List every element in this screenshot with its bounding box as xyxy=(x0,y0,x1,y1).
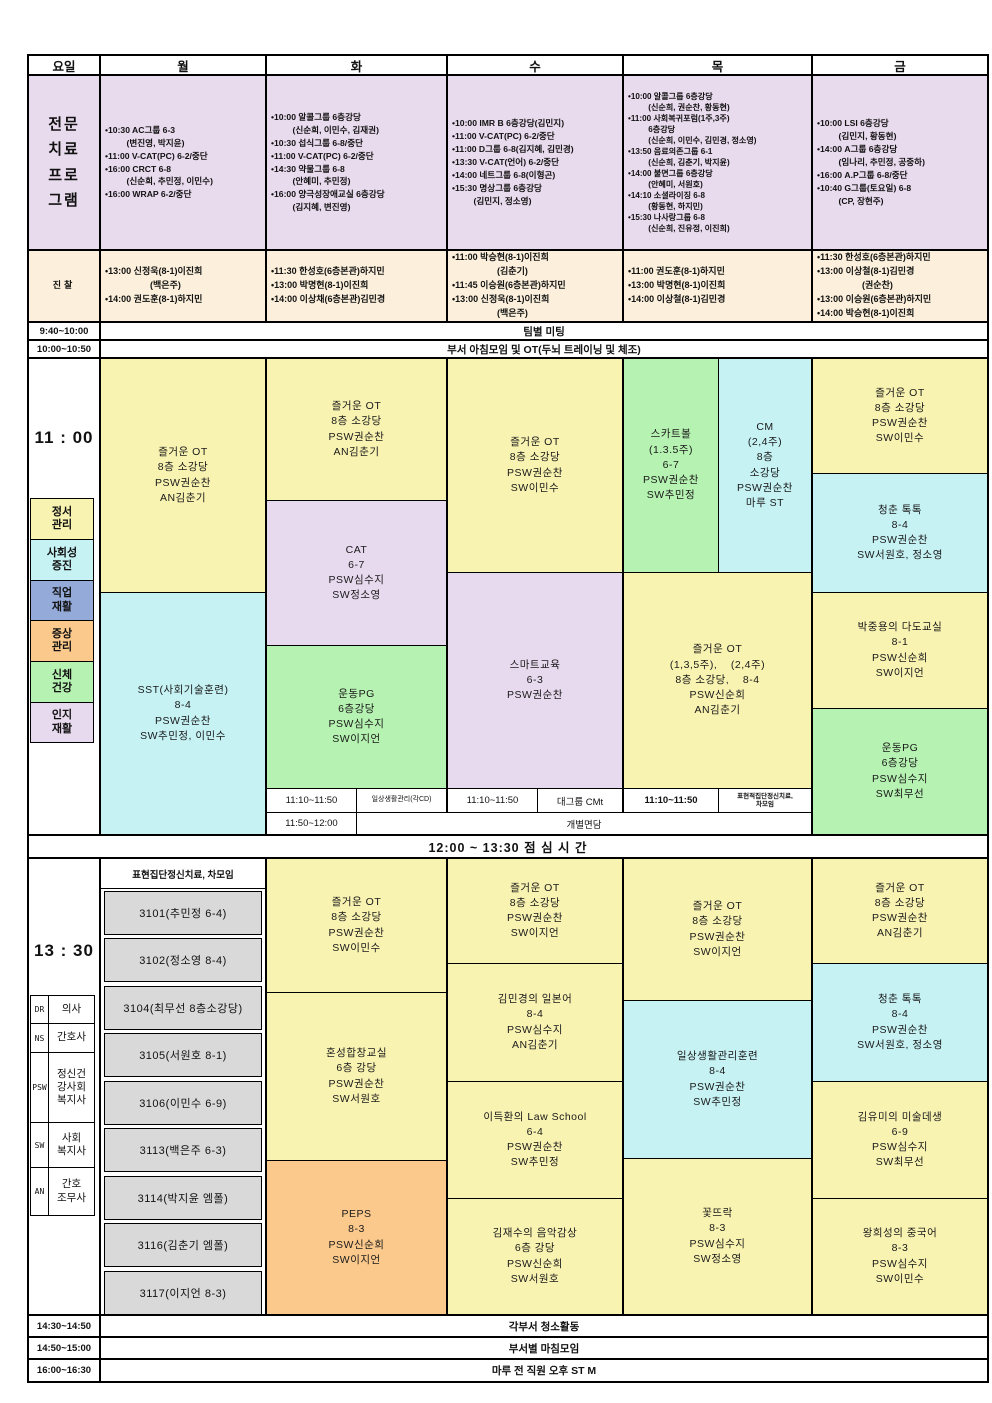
pm-room-3114: 3114(박지윤 엠폴) xyxy=(104,1176,262,1220)
team-meeting-text: 팀별 미팅 xyxy=(100,322,988,340)
pm-room-3101: 3101(추민정 6-4) xyxy=(104,891,262,935)
afternoon-st-time: 16:00~16:30 xyxy=(28,1359,100,1382)
am-fri-talktalk-block: 청춘 톡톡 8-4 PSW권순찬 SW서원호, 정소영 xyxy=(812,473,988,593)
legend-vocational-rehab: 직업 재활 xyxy=(30,580,94,621)
program-thu: •10:00 알콜그룹 6층강당 (신순희, 권순찬, 황동현) •11:00 … xyxy=(623,75,812,250)
pm-tue-peps-block: PEPS 8-3 PSW신순희 SW이지언 xyxy=(266,1160,447,1315)
am-sub1-wed-time: 11:10~11:50 xyxy=(447,788,538,813)
legend-an-abbr: AN xyxy=(30,1167,49,1216)
afternoon-st-text: 마루 전 직원 오후 ST M xyxy=(100,1359,988,1382)
lunch-row: 12:00 ~ 13:30 점 심 시 간 xyxy=(28,835,988,858)
pm-tue-choir-block: 혼성합창교실 6층 강당 PSW권순찬 SW서원호 xyxy=(266,992,447,1161)
legend-symptom-management: 증상 관리 xyxy=(30,620,94,662)
program-fri: •10:00 LSI 6층강당 (김민지, 황동현) •14:00 A그룹 6층… xyxy=(812,75,988,250)
pm-tue-ot-block: 즐거운 OT 8층 소강당 PSW권순찬 SW이민수 xyxy=(266,858,447,993)
pm-fri-talktalk-block: 청춘 톡톡 8-4 PSW권순찬 SW서원호, 정소영 xyxy=(812,963,988,1082)
closing-meeting-time: 14:50~15:00 xyxy=(28,1337,100,1359)
pm-fri-chinese-block: 왕희성의 중국어 8-3 PSW심수지 SW이민수 xyxy=(812,1198,988,1315)
pm-room-3104: 3104(최무선 8층소강당) xyxy=(104,986,262,1030)
exam-wed: •11:00 박승현(8-1)이진희 (김춘기) •11:45 이승원(6층본관… xyxy=(447,250,623,322)
pm-room-3116: 3116(김춘기 엠폴) xyxy=(104,1223,262,1267)
team-meeting-time: 9:40~10:00 xyxy=(28,322,100,340)
cleanup-time: 14:30~14:50 xyxy=(28,1315,100,1337)
pm-thu-daily-life-block: 일상생활관리훈련 8-4 PSW권순찬 SW추민정 xyxy=(623,1000,812,1159)
am-sub1-tue-label: 일상생활관리(각CD) xyxy=(356,788,447,813)
am-sub2-label: 개별면담 xyxy=(356,812,812,835)
am-time-label: 11 : 00 xyxy=(28,425,100,451)
exam-thu: •11:00 권도훈(8-1)하지민 •13:00 박명현(8-1)이진희 •1… xyxy=(623,250,812,322)
col-header-fri: 금 xyxy=(812,55,988,75)
col-header-mon: 월 xyxy=(100,55,266,75)
morning-meeting-time: 10:00~10:50 xyxy=(28,340,100,358)
exam-fri: •11:30 한성호(6층본관)하지민 •13:00 이상철(8-1)김민경 (… xyxy=(812,250,988,322)
pm-mon-header-cell: 표현집단정신치료, 차모임 xyxy=(100,858,266,889)
legend-psw-label: 정신건 강사회 복지사 xyxy=(48,1052,95,1123)
pm-room-3106: 3106(이민수 6-9) xyxy=(104,1081,262,1125)
am-thu-skatball-block: 스카트볼 (1.3.5주) 6-7 PSW권순찬 SW추민정 xyxy=(623,358,719,573)
am-sub1-thu-time: 11:10~11:50 xyxy=(623,788,719,813)
program-tue: •10:00 알콜그룹 6층강당 (신순희, 이민수, 김재권) •10:30 … xyxy=(266,75,447,250)
pm-room-3117: 3117(이지언 8-3) xyxy=(104,1271,262,1315)
am-fri-exercise-block: 운동PG 6층강당 PSW심수지 SW최무선 xyxy=(812,708,988,835)
pm-thu-ot-block: 즐거운 OT 8층 소강당 PSW권순찬 SW이지언 xyxy=(623,858,812,1001)
legend-sw-label: 사회 복지사 xyxy=(48,1122,95,1168)
pm-fri-art-block: 김유미의 미술데생 6-9 PSW심수지 SW최무선 xyxy=(812,1081,988,1199)
morning-meeting-text: 부서 아침모임 및 OT(두뇌 트레이닝 및 체조) xyxy=(100,340,988,358)
pm-wed-lawschool-block: 이득환의 Law School 6-4 PSW권순찬 SW추민정 xyxy=(447,1081,623,1199)
legend-physical-health: 신체 건강 xyxy=(30,661,94,703)
pm-wed-japanese-block: 김민경의 일본어 8-4 PSW심수지 AN김춘기 xyxy=(447,963,623,1082)
weekly-schedule-sheet: 요일 월 화 수 목 금 전문 치료 프로 그램 •10:30 AC그룹 6-3… xyxy=(0,0,992,1403)
legend-an-label: 간호 조무사 xyxy=(48,1167,95,1216)
am-tue-exercise-block: 운동PG 6층강당 PSW심수지 SW이지언 xyxy=(266,645,447,789)
pm-wed-ot-block: 즐거운 OT 8층 소강당 PSW권순찬 SW이지언 xyxy=(447,858,623,964)
legend-dr-abbr: DR xyxy=(30,995,49,1024)
pm-thu-flower-block: 꽃뜨락 8-3 PSW심수지 SW정소영 xyxy=(623,1158,812,1315)
am-sub1-thu-label: 표현적집단정신치료, 차모임 xyxy=(718,788,812,813)
legend-ns-abbr: NS xyxy=(30,1023,49,1053)
col-header-day: 요일 xyxy=(28,55,100,75)
col-header-wed: 수 xyxy=(447,55,623,75)
closing-meeting-text: 부서별 마침모임 xyxy=(100,1337,988,1359)
pm-room-3113: 3113(백은주 6-3) xyxy=(104,1128,262,1172)
am-wed-ot-block: 즐거운 OT 8층 소강당 PSW권순찬 SW이민수 xyxy=(447,358,623,573)
am-fri-ot-block: 즐거운 OT 8층 소강당 PSW권순찬 SW이민수 xyxy=(812,358,988,474)
am-fri-tea-class-block: 박중용의 다도교실 8-1 PSW신순희 SW이지언 xyxy=(812,592,988,709)
cleanup-text: 각부서 청소활동 xyxy=(100,1315,988,1337)
am-wed-smart-block: 스마트교육 6-3 PSW권순찬 xyxy=(447,572,623,789)
legend-emotion-management: 정서 관리 xyxy=(30,498,94,540)
exam-tue: •11:30 한성호(6층본관)하지민 •13:00 박명현(8-1)이진희 •… xyxy=(266,250,447,322)
am-thu-ot-block: 즐거운 OT (1,3,5주), (2,4주) 8층 소강당, 8-4 PSW신… xyxy=(623,572,812,789)
am-tue-ot-block: 즐거운 OT 8층 소강당 PSW권순찬 AN김춘기 xyxy=(266,358,447,501)
legend-dr-label: 의사 xyxy=(48,995,95,1024)
am-sub1-tue-time: 11:10~11:50 xyxy=(266,788,357,813)
col-header-thu: 목 xyxy=(623,55,812,75)
legend-cognitive-rehab: 인지 재활 xyxy=(30,702,94,743)
pm-room-3102: 3102(정소영 8-4) xyxy=(104,938,262,982)
pm-fri-ot-block: 즐거운 OT 8층 소강당 PSW권순찬 AN김춘기 xyxy=(812,858,988,964)
am-thu-cm-block: CM (2,4주) 8층 소강당 PSW권순찬 마루 ST xyxy=(718,358,812,573)
pm-room-3105: 3105(서원호 8-1) xyxy=(104,1033,262,1077)
exam-mon: •13:00 신정욱(8-1)이진희 (백은주) •14:00 권도훈(8-1)… xyxy=(100,250,266,322)
am-mon-ot-block: 즐거운 OT 8층 소강당 PSW권순찬 AN김춘기 xyxy=(100,358,266,593)
legend-social-improvement: 사회성 증진 xyxy=(30,539,94,581)
am-tue-cat-block: CAT 6-7 PSW심수지 SW정소영 xyxy=(266,500,447,646)
legend-ns-label: 간호사 xyxy=(48,1023,95,1053)
exam-row-label: 진찰 xyxy=(28,250,100,322)
am-sub2-time: 11:50~12:00 xyxy=(266,812,357,835)
program-row-label: 전문 치료 프로 그램 xyxy=(28,75,100,250)
program-mon: •10:30 AC그룹 6-3 (변진영, 박지윤) •11:00 V-CAT(… xyxy=(100,75,266,250)
am-mon-sst-block: SST(사회기술훈련) 8-4 PSW권순찬 SW추민정, 이민수 xyxy=(100,592,266,835)
col-header-tue: 화 xyxy=(266,55,447,75)
pm-wed-music-block: 김재수의 음악감상 6층 강당 PSW신순희 SW서원호 xyxy=(447,1198,623,1315)
legend-psw-abbr: PSW xyxy=(30,1052,49,1123)
pm-time-label: 13 : 30 xyxy=(28,938,100,964)
am-sub1-wed-label: 대그룹 CMt xyxy=(537,788,623,813)
legend-sw-abbr: SW xyxy=(30,1122,49,1168)
program-wed: •10:00 IMR B 6층강당(김민지) •11:00 V-CAT(PC) … xyxy=(447,75,623,250)
